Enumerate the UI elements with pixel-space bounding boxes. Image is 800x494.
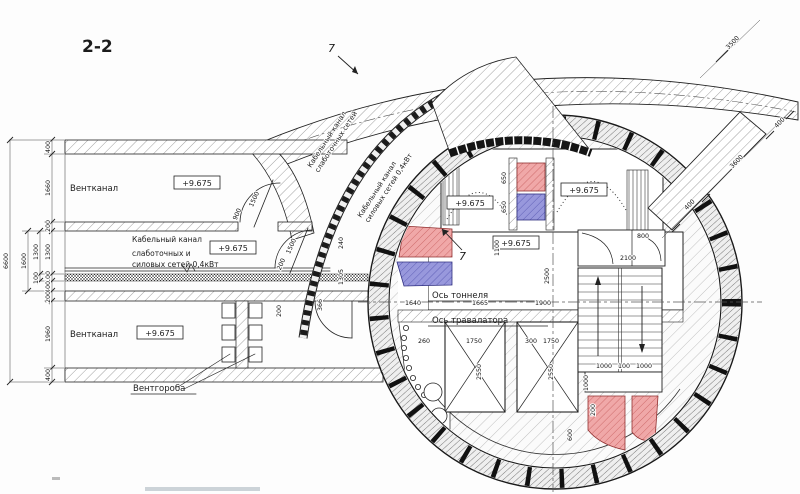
elev-box-circle-ur: +9.675 <box>561 183 607 196</box>
dim-shaft-3: 1750 <box>543 338 559 345</box>
dim-floor-0: 1640 <box>405 300 421 307</box>
vent-boxes-label: Вентгороба <box>133 384 185 394</box>
wall-mid-b <box>278 222 312 231</box>
callout-top <box>338 56 358 74</box>
shaft-1 <box>445 322 505 412</box>
dim-junction-0: 240 <box>338 237 345 249</box>
elev-box-cable: +9.675 <box>210 241 256 254</box>
wall-mid-a <box>65 222 238 231</box>
dim-roomtr-0: 1100 <box>494 240 501 256</box>
dim-chain-1: 1660 <box>45 180 52 196</box>
stair-landing <box>585 372 662 392</box>
scan-artifact-bottom <box>145 487 260 491</box>
red-wedge-2 <box>632 396 658 441</box>
dim-doormid-1: 200 <box>276 257 287 271</box>
scan-artifact-left <box>52 477 60 480</box>
dim-chain-2: 200 <box>45 220 52 232</box>
fan-unit-red-top <box>517 163 545 191</box>
door-top <box>240 180 280 227</box>
elev-box-circle-ul: +9.675 <box>447 196 493 209</box>
dim-doorbot-0: 200 <box>276 305 283 317</box>
cable-tray-strip <box>65 274 368 281</box>
dim-shaft-2: 300 <box>525 338 537 345</box>
dim-doortop-1: 900 <box>232 207 243 221</box>
wall-bottom <box>65 368 383 382</box>
dim-landing-0: 1000 <box>596 363 612 370</box>
fan-unit-blue-top <box>517 194 545 220</box>
dim-floor-2: 1900 <box>535 300 551 307</box>
dim-floor-1: 1665 <box>472 300 488 307</box>
dim-chain-8: 400 <box>45 369 52 381</box>
callout-ring-label: 7 <box>459 250 466 263</box>
upper-wedge <box>432 57 591 154</box>
dim-aux-2: 100 <box>33 272 40 284</box>
dim-shafth-1: 2550 <box>548 364 555 380</box>
dim-chain-3: 1300 <box>45 244 52 260</box>
dim-landing-h: 1000 <box>583 375 590 391</box>
dim-roomtr-1: 800 <box>637 233 649 240</box>
dim-diag-top: 3500 <box>725 35 741 51</box>
dim-shaft-1: 1750 <box>466 338 482 345</box>
dim-aux-1: 1300 <box>33 244 40 260</box>
cable-label-l3: силовых сетей 0,4кВт <box>132 260 219 269</box>
elev-text-3: +9.675 <box>145 329 175 338</box>
dim-fan-0: 650 <box>501 172 508 184</box>
cable-label-l1: Кабельный канал <box>132 235 202 244</box>
dim-aux-0: 1600 <box>21 253 28 269</box>
axis-travelator-label: Ось травалатора <box>432 316 508 326</box>
section-drawing-2-2: +9.675 +9.675 +9.675 +9.675 +9.675 +9.67… <box>0 0 800 494</box>
dim-overall: 6600 <box>3 253 10 269</box>
callout-top-label: 7 <box>328 42 335 55</box>
vent-bottom-label: Вентканал <box>70 330 118 340</box>
dim-landing-2: 1000 <box>636 363 652 370</box>
dim-misc-1: 200 <box>590 404 597 416</box>
dim-doortop-0: 1500 <box>248 191 261 208</box>
vent-top-label: Вентканал <box>70 184 118 194</box>
dim-misc-0: 600 <box>567 429 574 441</box>
elev-text-5: +9.675 <box>569 186 599 195</box>
elev-text-1: +9.675 <box>182 179 212 188</box>
dim-chain-6: 200 <box>45 291 52 303</box>
diagonal-adit <box>648 20 794 238</box>
left-structure <box>65 140 383 394</box>
dim-chain-0: 400 <box>45 141 52 153</box>
pier-right <box>627 170 648 232</box>
dim-shafth-0: 2550 <box>476 364 483 380</box>
elev-text-2: +9.675 <box>218 244 248 253</box>
wall-top <box>65 140 347 154</box>
elev-box-vent-bottom: +9.675 <box>137 326 183 339</box>
dim-chain-7: 1960 <box>45 326 52 342</box>
elev-box-vent-top: +9.675 <box>174 176 220 189</box>
cable-label-l2: слаботочных и <box>132 249 191 258</box>
dim-doorbot-1: 366 <box>317 299 324 311</box>
riser-wall <box>236 301 248 368</box>
dim-shaft-0: 260 <box>418 338 430 345</box>
dim-hall-height: 2500 <box>544 268 551 284</box>
fan-unit-blue-left <box>397 262 452 286</box>
dim-junction-1: 1305 <box>338 269 345 285</box>
pier-mid-a <box>509 158 517 230</box>
staircase <box>578 268 662 392</box>
dim-roomtr-2: 2100 <box>620 255 636 262</box>
elev-text-4: +9.675 <box>455 199 485 208</box>
drawing-svg: +9.675 +9.675 +9.675 +9.675 +9.675 +9.67… <box>0 0 800 494</box>
elev-text-6: +9.675 <box>501 239 531 248</box>
dim-fan-1: 650 <box>501 201 508 213</box>
dim-landing-1: 100 <box>618 363 630 370</box>
section-title: 2-2 <box>82 37 113 57</box>
